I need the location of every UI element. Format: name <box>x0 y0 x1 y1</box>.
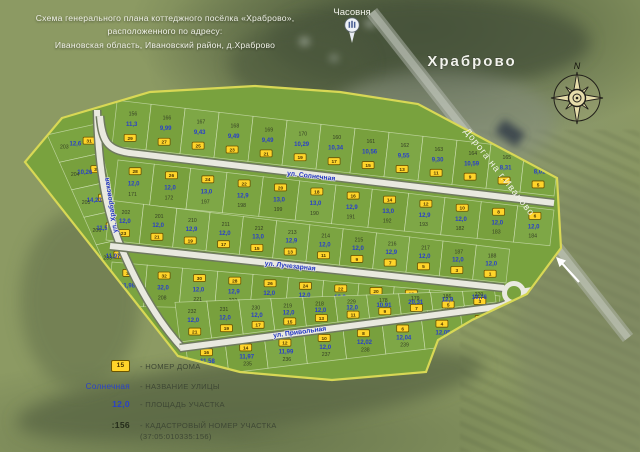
plot-area: 12,0 <box>263 291 275 297</box>
house-number: 23 <box>229 147 235 153</box>
legend-area-sample: 12,0 <box>34 399 140 409</box>
plot-cadastre-number: 163 <box>434 147 443 153</box>
house-number: 20 <box>278 185 284 191</box>
plot-cadastre-number: 182 <box>456 226 465 232</box>
plot-area: 11,3 <box>126 122 138 128</box>
plot-area: 9,30 <box>432 158 444 164</box>
house-number: 11 <box>434 171 439 177</box>
legend: 15 - НОМЕР ДОМА Солнечная - НАЗВАНИЕ УЛИ… <box>34 360 334 441</box>
plot-cadastre-number: 239 <box>400 343 409 349</box>
plot-area: 11,99 <box>279 350 294 356</box>
house-number: 28 <box>232 279 238 285</box>
house-number: 11 <box>351 313 356 319</box>
plan-title: Схема генерального плана коттеджного пос… <box>22 12 308 52</box>
house-number: 19 <box>188 238 194 244</box>
plot-area: 10,59 <box>464 161 480 167</box>
house-number: 21 <box>263 151 269 157</box>
legend-row-plot-area: 12,0 - ПЛОЩАДЬ УЧАСТКА <box>34 399 334 409</box>
house-number: 2 <box>480 317 483 323</box>
plot-area: 10,26 <box>77 170 93 176</box>
plot-cadastre-number: 203 <box>60 144 69 150</box>
plot-area: 10,93 <box>475 326 491 332</box>
plot-cadastre-number: 184 <box>528 233 537 239</box>
house-number: 15 <box>287 319 293 325</box>
house-number: 23 <box>121 231 127 237</box>
compass-north-label: N <box>574 61 581 71</box>
house-number: 7 <box>415 306 418 312</box>
house-number: 27 <box>161 140 167 146</box>
plot-cadastre-number: 197 <box>201 199 210 205</box>
house-number: 5 <box>422 264 425 270</box>
plot-area: 9,43 <box>194 130 206 136</box>
plot-area: 12,0 <box>219 316 231 322</box>
house-number: 15 <box>365 163 371 169</box>
house-number: 1 <box>489 272 492 278</box>
plot-area: 12,0 <box>152 223 164 229</box>
plot-cadastre-number: 202 <box>122 210 131 216</box>
plot-cadastre-number: 213 <box>288 230 297 236</box>
plot-cadastre-number: 219 <box>283 303 292 309</box>
plot-cadastre-number: 191 <box>346 215 355 221</box>
plot-area: 12,0 <box>528 225 540 231</box>
plot-cadastre-number: 220 <box>475 292 484 298</box>
plot-cadastre-number: 186 <box>443 294 452 300</box>
house-number: 15 <box>254 246 260 252</box>
house-number: 22 <box>241 181 247 187</box>
plot-area: 13,0 <box>252 235 264 241</box>
plot-cadastre-number: 161 <box>367 139 376 145</box>
house-number: 13 <box>399 167 405 173</box>
plot-cadastre-number: 217 <box>421 246 430 252</box>
plot-cadastre-number: 208 <box>158 295 167 301</box>
plot-cadastre-number: 166 <box>163 115 172 121</box>
plot-area: 12,02 <box>357 340 373 346</box>
plot-area: 10,29 <box>294 142 310 148</box>
house-number: 18 <box>314 189 320 195</box>
house-number: 16 <box>351 193 357 199</box>
plot-cadastre-number: 171 <box>128 192 137 198</box>
legend-label: - КАДАСТРОВЫЙ НОМЕР УЧАСТКА <box>140 421 277 430</box>
plot-cadastre-number: 160 <box>333 135 342 141</box>
plan-title-line1: Схема генерального плана коттеджного пос… <box>22 12 308 25</box>
plot-cadastre-number: 230 <box>252 305 261 311</box>
plot-area: 12,0 <box>315 308 327 314</box>
plot-cadastre-number: 164 <box>468 151 477 157</box>
plot-cadastre-number: 216 <box>388 242 397 248</box>
plot-cadastre-number: 170 <box>299 131 308 137</box>
plot-cadastre-number: 206 <box>93 228 102 234</box>
house-number: 21 <box>154 235 160 241</box>
plot-cadastre-number: 192 <box>383 218 392 224</box>
plot-cadastre-number: 183 <box>492 230 501 236</box>
plot-area: 13,0 <box>201 189 213 195</box>
house-number: 26 <box>169 173 175 179</box>
plot-cadastre-number: 172 <box>165 196 174 202</box>
house-number: 11 <box>321 253 326 259</box>
legend-row-street-name: Солнечная - НАЗВАНИЕ УЛИЦЫ <box>34 382 334 391</box>
house-number: 22 <box>338 286 344 292</box>
house-number: 6 <box>534 214 537 220</box>
plot-area: 12,0 <box>187 318 199 324</box>
plot-cadastre-number: 215 <box>355 238 364 244</box>
house-number: 31 <box>86 139 92 145</box>
plot-cadastre-number: 156 <box>129 111 138 117</box>
chapel-label: Часовня <box>333 7 370 18</box>
legend-row-house-number: 15 - НОМЕР ДОМА <box>34 360 334 372</box>
plot-area: 12,9 <box>237 193 249 199</box>
house-number: 19 <box>297 155 303 161</box>
plot-area: 10,34 <box>328 146 344 152</box>
plot-area: 10,56 <box>362 150 378 156</box>
house-number: 8 <box>362 331 365 337</box>
plot-area: 13,0 <box>273 197 285 203</box>
house-number: 21 <box>192 329 198 335</box>
house-number: 12 <box>423 202 429 208</box>
plot-area: 12,9 <box>228 289 240 295</box>
plot-cadastre-number: 232 <box>188 309 197 315</box>
house-number: 8 <box>497 210 500 216</box>
plot-cadastre-number: 162 <box>400 143 409 149</box>
house-number: 10 <box>460 206 466 212</box>
plot-area: 12,04 <box>396 335 412 341</box>
plot-area: 12,0 <box>164 186 176 192</box>
house-number: 24 <box>205 177 211 183</box>
house-number: 19 <box>224 326 230 332</box>
plot-area: 12,0 <box>128 182 140 188</box>
plot-cadastre-number: 212 <box>255 226 264 232</box>
plot-cadastre-number: 233 <box>103 256 112 262</box>
house-number: 26 <box>267 281 273 287</box>
house-number: 17 <box>331 159 337 165</box>
plot-cadastre-number: 205 <box>82 200 91 206</box>
house-number: 6 <box>401 326 404 332</box>
house-number: 20 <box>373 289 379 295</box>
legend-label: - ПЛОЩАДЬ УЧАСТКА <box>140 400 225 409</box>
plot-area: 12,0 <box>283 310 295 316</box>
compass-rose-icon: N <box>551 61 603 124</box>
house-number: 4 <box>441 322 444 328</box>
plot-cadastre-number: 237 <box>322 352 331 358</box>
plot-cadastre-number: 190 <box>310 211 319 217</box>
house-number: 3 <box>455 268 458 274</box>
plot-area: 12,0 <box>193 287 205 293</box>
plot-cadastre-number: 199 <box>274 207 283 213</box>
plot-cadastre-number: 214 <box>321 234 330 240</box>
plot-cadastre-number: 188 <box>488 254 497 260</box>
plot-cadastre-number: 218 <box>315 302 324 308</box>
plot-area: 32,0 <box>157 286 169 292</box>
plot-area: 12,9 <box>286 238 298 244</box>
plot-cadastre-number: 231 <box>220 307 229 313</box>
legend-label: - НОМЕР ДОМА <box>140 362 201 371</box>
house-number: 17 <box>255 323 261 329</box>
plot-cadastre-number: 193 <box>419 222 428 228</box>
plot-area: 12,0 <box>319 242 331 248</box>
plot-cadastre-number: 211 <box>222 222 230 228</box>
plot-area: 12,0 <box>485 262 497 268</box>
legend-street-sample: Солнечная <box>34 382 140 391</box>
plot-cadastre-number: 210 <box>188 218 197 224</box>
plot-cadastre-number: 169 <box>265 127 274 133</box>
house-number: 16 <box>204 350 210 356</box>
house-number: 30 <box>197 276 203 282</box>
plot-cadastre-number: 198 <box>237 203 246 209</box>
house-number: 17 <box>221 242 227 248</box>
plot-cadastre-number: 204 <box>71 172 80 178</box>
house-number: 12 <box>282 341 288 347</box>
plot-area: 9,49 <box>262 138 274 144</box>
plot-cadastre-number: 229 <box>347 300 356 306</box>
legend-row-cadastre: :156 - КАДАСТРОВЫЙ НОМЕР УЧАСТКА <box>34 420 334 430</box>
house-number: 29 <box>127 136 133 142</box>
legend-cadastre-sublabel: (37:05:010335:156) <box>140 432 334 441</box>
plot-cadastre-number: 201 <box>155 214 164 220</box>
plot-cadastre-number: 238 <box>361 347 370 353</box>
house-number: 14 <box>243 345 249 351</box>
legend-cadastre-sample: :156 <box>34 420 140 430</box>
plot-cadastre-number: 241 <box>479 333 488 339</box>
plot-area: 12,9 <box>346 205 358 211</box>
legend-label: - НАЗВАНИЕ УЛИЦЫ <box>140 382 220 391</box>
house-number: 14 <box>387 198 393 204</box>
plan-title-line2: расположенного по адресу: <box>22 25 308 38</box>
plot-area: 12,0 <box>119 219 131 225</box>
house-number-icon: 15 <box>111 360 130 372</box>
plot-area: 9,99 <box>160 126 172 132</box>
house-number: 28 <box>132 169 138 175</box>
plot-cadastre-number: 178 <box>379 298 388 304</box>
plot-cadastre-number: 187 <box>454 250 463 256</box>
plot-area: 12,0 <box>452 258 464 264</box>
map-canvas: 3112,62033310,262043514,232053711,512063… <box>0 0 640 452</box>
plot-area: 12,0 <box>219 231 231 237</box>
plot-cadastre-number: 165 <box>502 155 511 161</box>
plot-cadastre-number: 179 <box>411 296 420 302</box>
house-number: 9 <box>383 309 386 315</box>
house-number: 5 <box>537 182 540 188</box>
plot-cadastre-number: 167 <box>197 119 206 125</box>
plot-area: 9,55 <box>398 154 410 160</box>
house-number: 24 <box>303 284 309 290</box>
plot-area: 12,9 <box>385 250 397 256</box>
house-number: 9 <box>356 257 359 263</box>
plot-area: 12,0 <box>491 221 503 227</box>
plot-area: 13,0 <box>382 209 394 215</box>
plot-area: 12,9 <box>186 227 198 233</box>
house-number: 32 <box>161 273 167 279</box>
plot-area: 12,6 <box>69 142 81 148</box>
house-number: 13 <box>288 249 294 255</box>
village-label: Храброво <box>427 53 516 70</box>
house-number: 25 <box>195 144 201 150</box>
plot-area: 12,0 <box>419 254 431 260</box>
house-number: 9 <box>469 175 472 181</box>
plot-cadastre-number: 168 <box>231 123 240 129</box>
plot-area: 12,0 <box>455 217 467 223</box>
house-number: 10 <box>321 336 327 342</box>
plan-title-line3: Ивановская область, Ивановский район, д.… <box>22 39 308 52</box>
plot-area: 12,0 <box>319 345 331 351</box>
plot-area: 12,0 <box>251 313 263 319</box>
plot-area: 12,0 <box>352 246 364 252</box>
house-number: 13 <box>319 316 325 322</box>
plot-area: 12,0 <box>346 305 358 311</box>
plot-area: 13,0 <box>310 201 322 207</box>
house-number: 7 <box>389 261 392 267</box>
plot-area: 9,49 <box>228 134 240 140</box>
plot-area: 12,9 <box>419 213 431 219</box>
plot-cadastre-number: 173 <box>536 159 545 165</box>
